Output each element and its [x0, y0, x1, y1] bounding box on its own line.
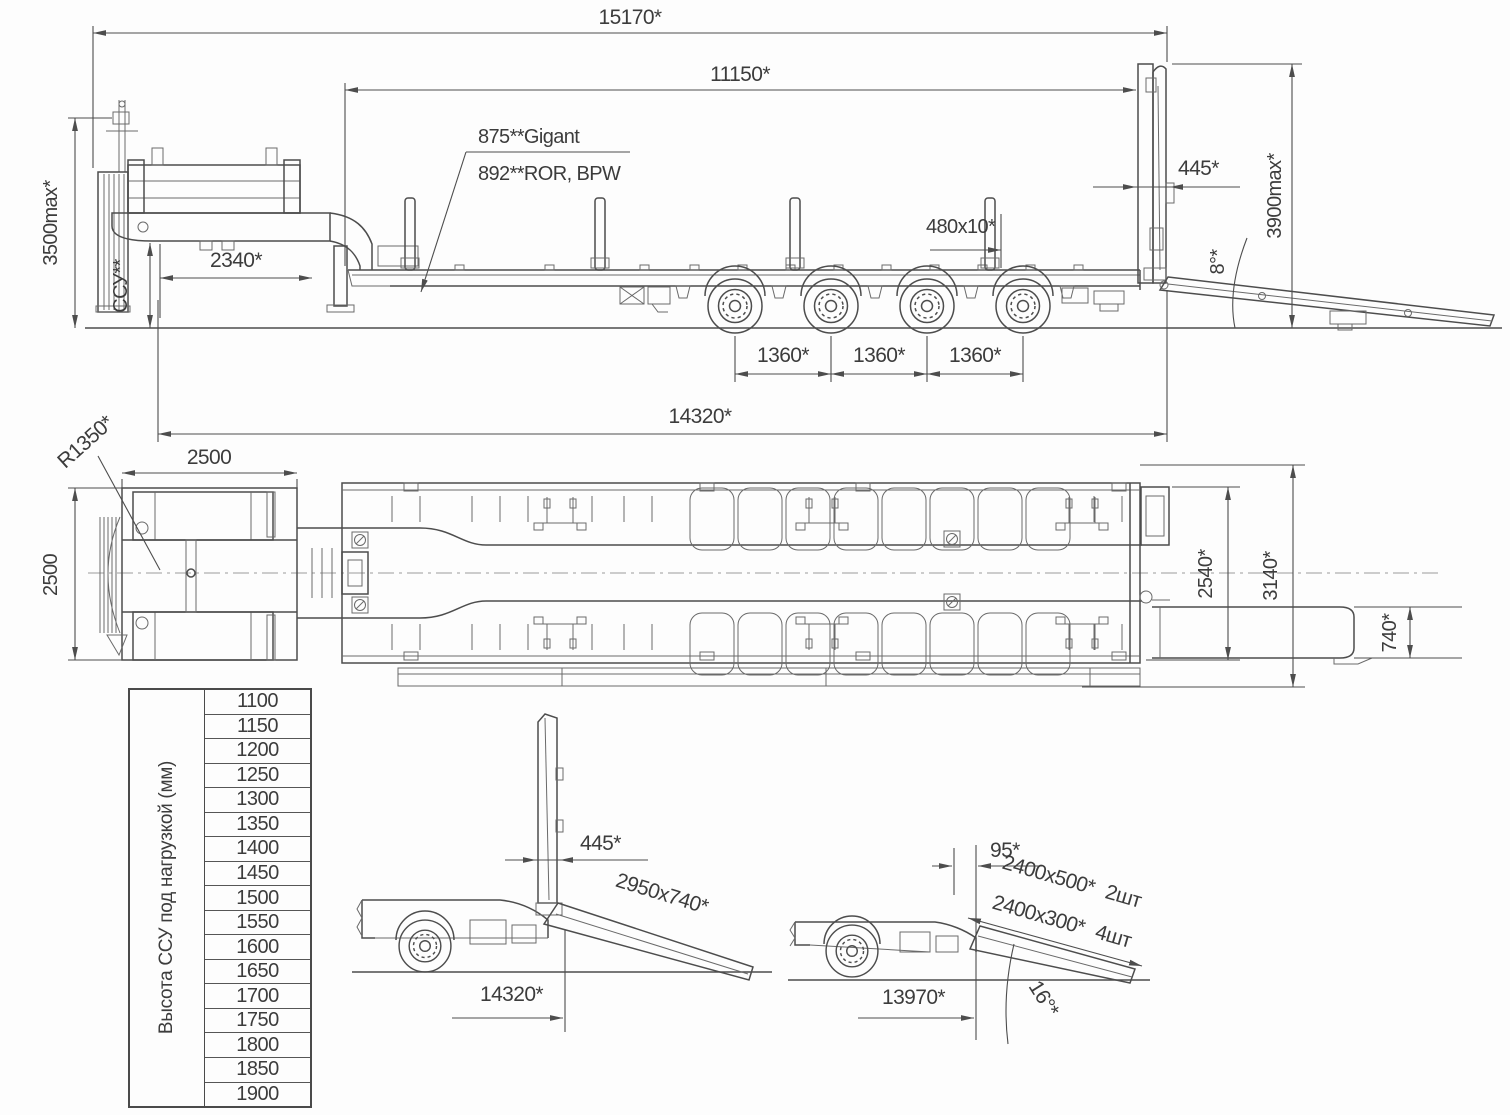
table-row-value: 1350 — [205, 813, 310, 838]
wheel-icon — [900, 279, 954, 333]
note-deck-height-ror: 892**ROR, BPW — [478, 163, 621, 185]
dim-axle-spacing-1: 1360* — [757, 344, 809, 367]
low-deck — [348, 265, 1140, 290]
wheels — [705, 266, 1053, 333]
plan-view-dimensions: R1350* 2500 2500 2540* 3140* 740* — [40, 411, 1462, 687]
height-table-header-label: Высота ССУ под нагрузкой (мм) — [156, 761, 178, 1034]
note-deck-height-gigant: 875**Gigant — [478, 126, 580, 148]
dim-total-length: 15170* — [599, 6, 662, 29]
dim-ramp-width: 740* — [1379, 613, 1401, 653]
table-row-value: 1800 — [205, 1033, 310, 1058]
stake-posts — [401, 198, 999, 270]
wheel-icon — [708, 279, 762, 333]
dim-swing-radius: R1350* — [53, 411, 118, 473]
detail-flap-dimensions: 445* 2950x740* 14320* — [452, 832, 711, 1032]
wheel-icon — [996, 279, 1050, 333]
table-row-value: 1600 — [205, 935, 310, 960]
table-row-value: 1650 — [205, 960, 310, 985]
table-row-value: 1300 — [205, 788, 310, 813]
table-row-value: 1250 — [205, 764, 310, 789]
toolbox — [620, 287, 670, 312]
plan-stowed-ramp — [1152, 607, 1372, 664]
table-row-value: 1700 — [205, 984, 310, 1009]
dim-flap-width-detail: 445* — [580, 832, 621, 855]
dim-deck-length: 11150* — [710, 63, 770, 86]
dim-front-width-vertical: 2500 — [40, 553, 62, 596]
detail-ramps-trailer — [790, 916, 976, 977]
detail-ramps-view: 95* 2400x500*2шт 2400x300*4шт 13970* 16°… — [788, 839, 1150, 1044]
table-row-value: 1150 — [205, 715, 310, 740]
dim-ramp-size: 2950x740* — [613, 869, 711, 919]
table-row-value: 1900 — [205, 1083, 310, 1107]
side-view-dimensions: 15170* 11150* 875**Gigant 892**ROR, BPW … — [40, 6, 1302, 442]
table-row-value: 1850 — [205, 1058, 310, 1083]
dim-base-length: 14320* — [669, 405, 732, 428]
side-view: 15170* 11150* 875**Gigant 892**ROR, BPW … — [40, 6, 1502, 442]
loading-ramp — [1160, 277, 1494, 330]
plan-view: R1350* 2500 2500 2540* 3140* 740* — [40, 411, 1462, 687]
plan-main-deck — [342, 483, 1170, 686]
dim-coupling-height: ССУ** — [110, 258, 132, 312]
dim-deck-width: 2540* — [1195, 549, 1217, 599]
table-row-value: 1400 — [205, 837, 310, 862]
detail-flap-view: 445* 2950x740* 14320* — [352, 714, 772, 1032]
table-row-value: 1500 — [205, 886, 310, 911]
dim-rear-max-height: 3900max* — [1264, 153, 1286, 239]
dim-angle: 16°* — [1024, 977, 1064, 1021]
detail-ramps-dimensions: 95* 2400x500*2шт 2400x300*4шт 13970* 16°… — [858, 839, 1145, 1044]
table-row-value: 1450 — [205, 862, 310, 887]
dim-max-height: 3500max* — [40, 180, 62, 266]
table-row-value: 1750 — [205, 1009, 310, 1034]
height-table-values: 1100 1150 1200 1250 1300 1350 1400 1450 … — [205, 690, 310, 1106]
dim-axle-spacing-3: 1360* — [949, 344, 1001, 367]
dim-base-length-detail: 14320* — [480, 983, 543, 1006]
rear-underbody — [1062, 288, 1124, 311]
wheel-icon — [804, 279, 858, 333]
dim-overall-width: 3140* — [1260, 551, 1282, 601]
gooseneck-bunk — [128, 148, 300, 213]
dim-front-width: 2500 — [187, 446, 231, 469]
height-table-header: Высота ССУ под нагрузкой (мм) — [130, 690, 205, 1106]
wheel-icon — [826, 925, 878, 977]
dim-gooseneck-length: 2340* — [210, 249, 262, 272]
rear-gate — [1138, 64, 1174, 289]
table-row-value: 1200 — [205, 739, 310, 764]
gooseneck — [112, 213, 418, 312]
detail-flap-trailer — [357, 900, 548, 972]
table-row-value: 1100 — [205, 690, 310, 715]
dim-ramp-angle: 8°* — [1207, 249, 1229, 275]
detail-flap-gate — [536, 714, 563, 915]
dim-axle-spacing-2: 1360* — [853, 344, 905, 367]
blueprint-page: { "side_view": { "dims": { "total_length… — [0, 0, 1510, 1115]
dim-length: 13970* — [882, 986, 945, 1009]
wheel-icon — [399, 920, 451, 972]
height-table: Высота ССУ под нагрузкой (мм) 1100 1150 … — [128, 688, 312, 1108]
wheel-arches — [690, 488, 1070, 675]
table-row-value: 1550 — [205, 911, 310, 936]
dim-rear-plate: 480x10* — [926, 216, 996, 238]
detail-flap-ramp — [544, 903, 753, 980]
dim-flap-width: 445* — [1178, 157, 1219, 180]
